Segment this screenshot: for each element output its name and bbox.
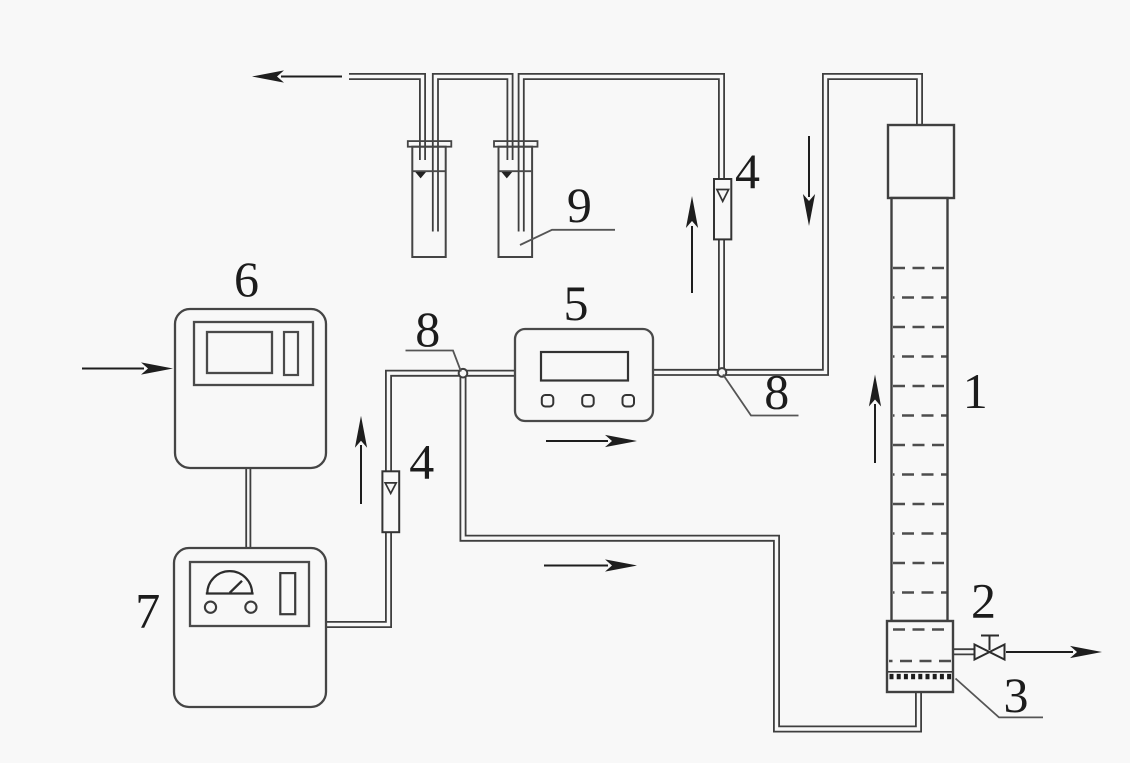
- svg-text:8: 8: [415, 301, 440, 357]
- svg-text:6: 6: [234, 251, 259, 307]
- svg-text:2: 2: [971, 573, 996, 629]
- svg-text:9: 9: [567, 177, 592, 233]
- svg-text:4: 4: [735, 143, 760, 199]
- svg-text:7: 7: [135, 583, 160, 639]
- svg-text:8: 8: [764, 364, 789, 420]
- svg-text:5: 5: [564, 275, 589, 331]
- svg-text:4: 4: [409, 434, 434, 490]
- svg-text:1: 1: [963, 363, 988, 419]
- svg-text:3: 3: [1004, 667, 1029, 723]
